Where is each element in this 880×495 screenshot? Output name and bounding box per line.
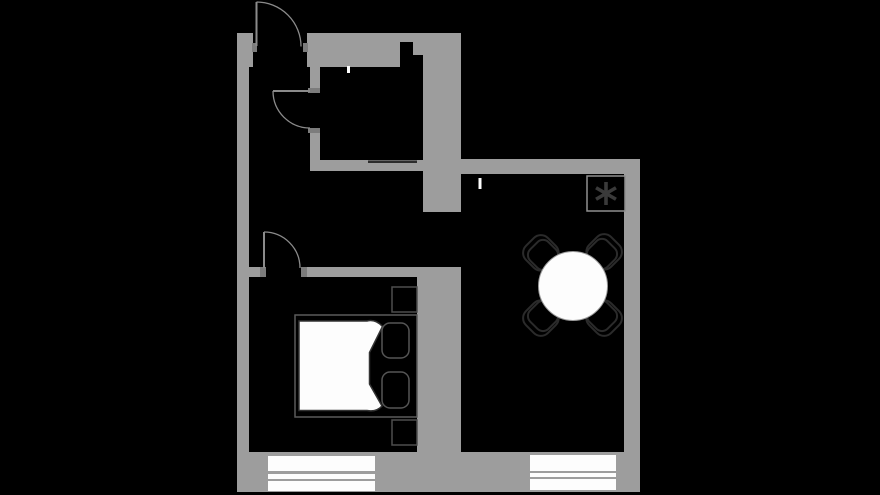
wall-segment-bathroom-wall-upper <box>310 67 320 88</box>
floor-plan <box>0 0 880 495</box>
bathroom-door-swing-arc <box>273 91 310 128</box>
livingroom-window-band <box>530 479 616 490</box>
bedroom-door <box>264 232 300 268</box>
bedroom-window-band <box>268 481 375 491</box>
bathroom-door <box>273 91 310 128</box>
bed-pillow <box>382 323 409 358</box>
bed-duvet <box>299 321 383 411</box>
wall-segment-core-wall-upper <box>423 33 461 212</box>
wall-segment-top-wall-step-a <box>400 33 413 42</box>
livingroom-window-band <box>530 473 616 477</box>
bathroom-wall-tick <box>347 66 350 73</box>
livingroom-window-band <box>530 455 616 471</box>
entrance-jamb-right <box>303 43 308 52</box>
dining-set <box>519 230 626 340</box>
wall-segment-left-wall-top <box>237 33 253 67</box>
wall-segment-left-wall <box>237 67 249 492</box>
appliance-box <box>587 176 625 211</box>
entrance-door-swing-arc <box>257 2 302 47</box>
dining-table <box>539 252 608 321</box>
wall-segment-living-top-wall <box>461 159 640 174</box>
bathroom-counter-line <box>368 161 417 164</box>
floor-plan-stage <box>0 0 880 495</box>
bedroom-jamb-left <box>260 267 266 277</box>
nightstand <box>392 287 417 312</box>
wall-segment-right-wall <box>624 159 640 492</box>
double-bed <box>295 315 417 417</box>
livingroom-wall-tick <box>479 178 482 189</box>
nightstand <box>392 420 417 445</box>
wall-segment-top-wall <box>307 33 400 67</box>
bedroom-window-band <box>268 456 375 471</box>
bed-pillow <box>382 372 409 408</box>
entrance-door <box>257 2 302 47</box>
wall-segment-bathroom-wall-lower <box>310 133 320 160</box>
bedroom-jamb-right <box>301 267 307 277</box>
bedroom-window-band <box>268 474 375 479</box>
bedroom-door-swing-arc <box>264 232 300 268</box>
bathroom-jamb-bottom <box>308 128 320 133</box>
wall-segment-bedroom-top-wall-left <box>249 267 261 277</box>
